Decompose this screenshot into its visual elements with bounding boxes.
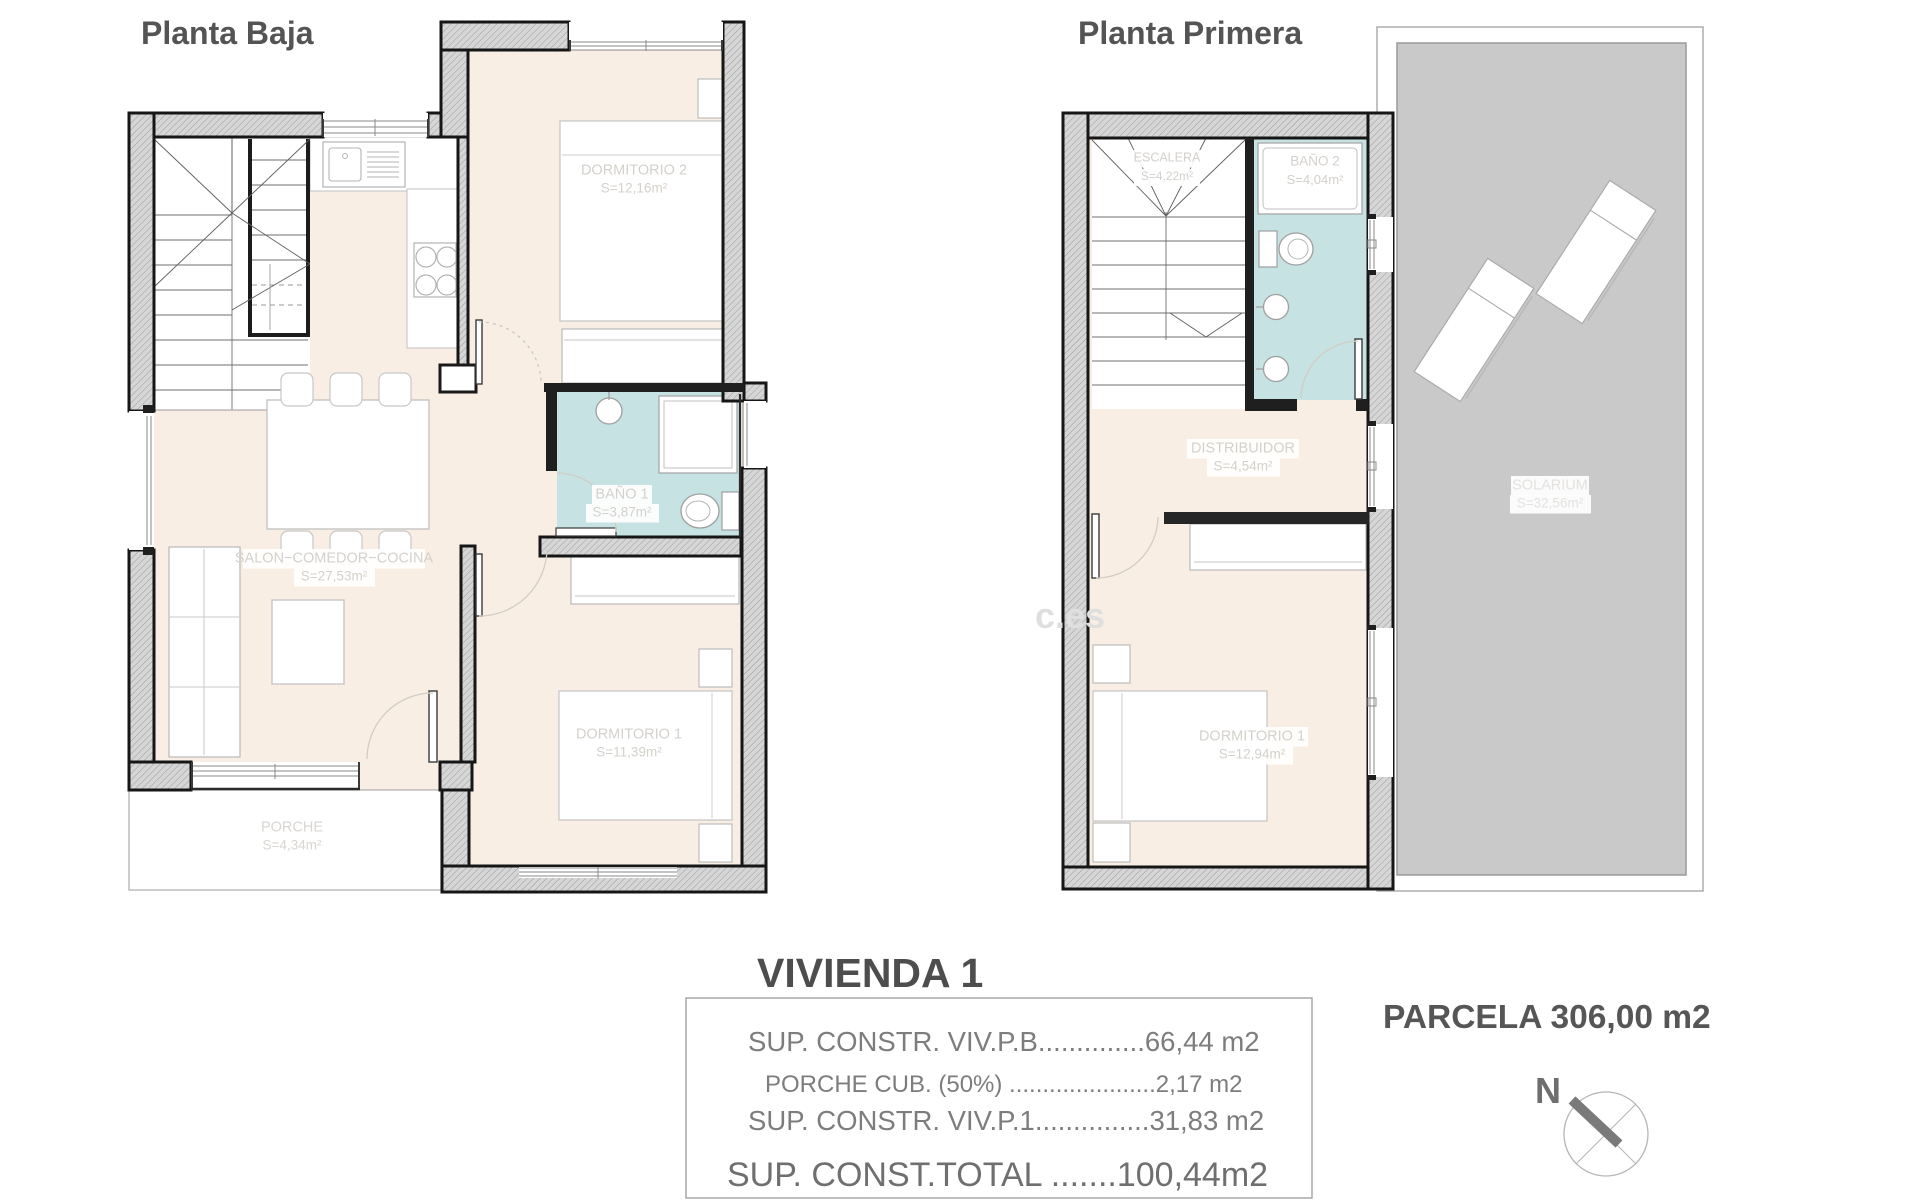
svg-text:PARCELA 306,00 m2: PARCELA 306,00 m2	[1383, 999, 1711, 1036]
svg-text:S=12,94m²: S=12,94m²	[1219, 747, 1286, 762]
svg-text:DORMITORIO 1: DORMITORIO 1	[576, 727, 682, 743]
svg-text:SUP. CONSTR. VIV.P.1..........: SUP. CONSTR. VIV.P.1...............31,83…	[748, 1105, 1264, 1136]
svg-text:N: N	[1535, 1070, 1561, 1111]
svg-text:BAÑO 1: BAÑO 1	[595, 486, 648, 503]
svg-text:S=4,34m²: S=4,34m²	[263, 838, 322, 853]
svg-text:S=11,39m²: S=11,39m²	[596, 745, 662, 760]
svg-text:S=12,16m²: S=12,16m²	[601, 181, 668, 196]
svg-text:S=32,56m²: S=32,56m²	[1517, 496, 1584, 511]
svg-text:S=4,22m²: S=4,22m²	[1141, 169, 1193, 183]
svg-text:SUP. CONST.TOTAL .......100,44: SUP. CONST.TOTAL .......100,44m2	[727, 1156, 1268, 1194]
svg-text:PORCHE: PORCHE	[261, 820, 323, 836]
svg-text:S=4,04m²: S=4,04m²	[1287, 172, 1344, 187]
svg-text:S=27,53m²: S=27,53m²	[301, 569, 368, 584]
svg-text:BAÑO 2: BAÑO 2	[1290, 154, 1340, 169]
svg-text:Planta Primera: Planta Primera	[1078, 15, 1302, 51]
svg-text:c.es: c.es	[1035, 595, 1105, 636]
svg-text:PORCHE CUB. (50%) ............: PORCHE CUB. (50%) ......................…	[765, 1071, 1242, 1098]
svg-text:VIVIENDA 1: VIVIENDA 1	[757, 950, 983, 996]
svg-text:Planta Baja: Planta Baja	[141, 15, 314, 51]
svg-text:S=4,54m²: S=4,54m²	[1214, 459, 1273, 474]
svg-text:DISTRIBUIDOR: DISTRIBUIDOR	[1191, 441, 1295, 457]
svg-text:DORMITORIO 1: DORMITORIO 1	[1199, 729, 1305, 745]
svg-text:SOLARIUM: SOLARIUM	[1512, 478, 1588, 494]
svg-text:DORMITORIO 2: DORMITORIO 2	[581, 163, 687, 179]
svg-text:SUP. CONSTR. VIV.P.B..........: SUP. CONSTR. VIV.P.B..............66,44 …	[748, 1026, 1260, 1057]
svg-text:S=3,87m²: S=3,87m²	[593, 505, 652, 520]
svg-text:ESCALERA: ESCALERA	[1134, 151, 1201, 165]
svg-text:SALON−COMEDOR−COCINA: SALON−COMEDOR−COCINA	[235, 551, 434, 567]
